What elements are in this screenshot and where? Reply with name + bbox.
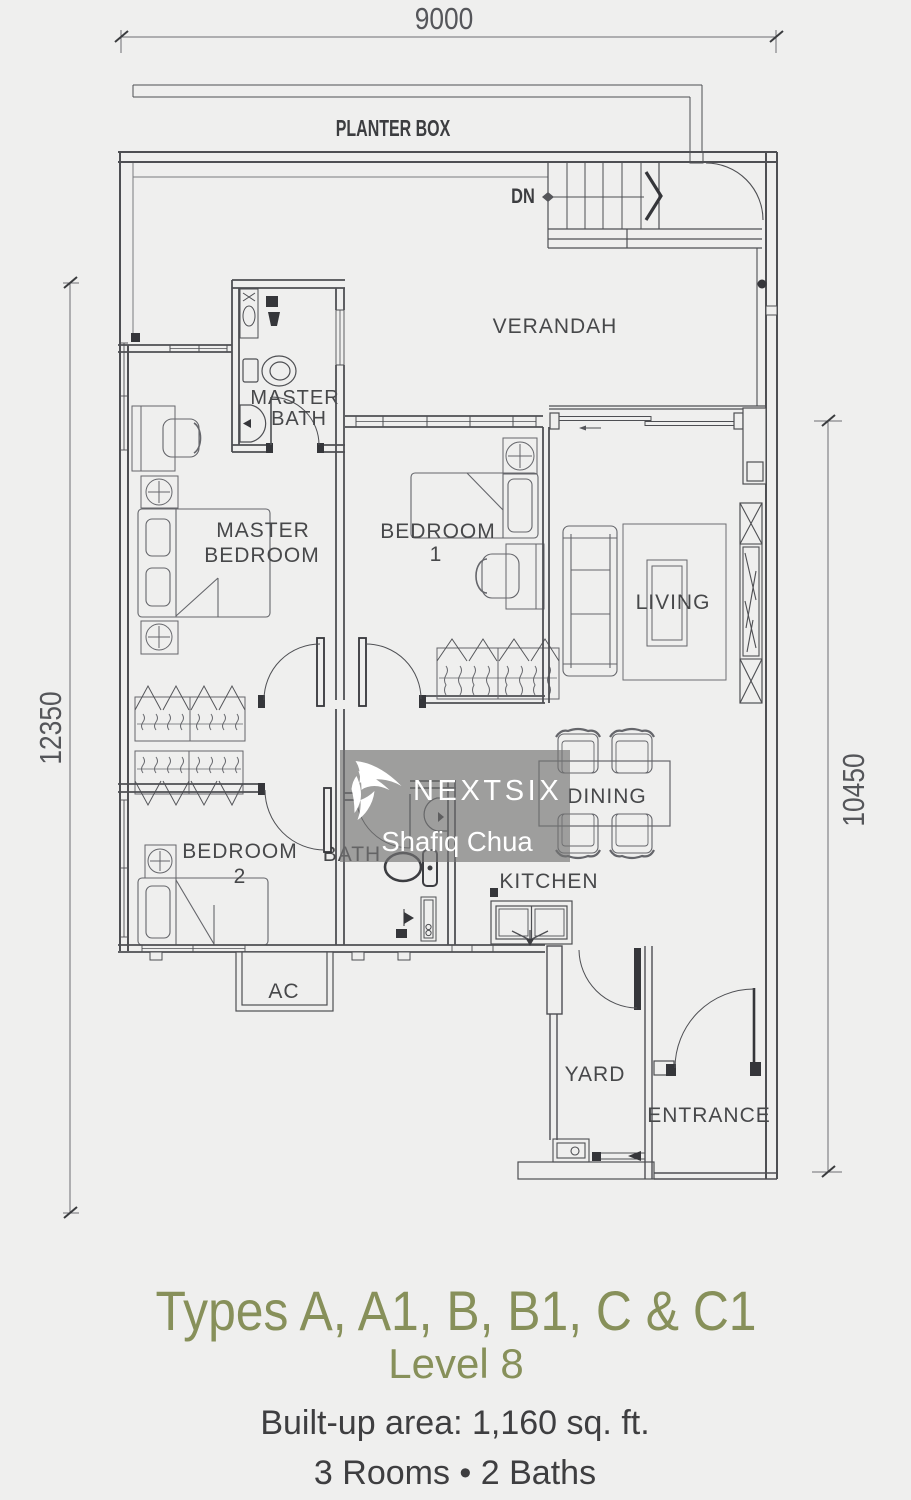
- svg-text:Level 8: Level 8: [388, 1340, 523, 1387]
- svg-text:DINING: DINING: [567, 785, 647, 808]
- svg-text:Shafiq Chua: Shafiq Chua: [381, 826, 533, 857]
- svg-text:BATH: BATH: [271, 408, 327, 430]
- svg-text:DN: DN: [511, 184, 535, 207]
- svg-text:BEDROOM: BEDROOM: [182, 840, 298, 863]
- svg-text:VERANDAH: VERANDAH: [493, 315, 618, 338]
- svg-text:KITCHEN: KITCHEN: [499, 870, 598, 893]
- svg-text:Types A, A1, B, B1, C & C1: Types A, A1, B, B1, C & C1: [155, 1280, 756, 1342]
- svg-text:1: 1: [430, 543, 443, 566]
- svg-text:PLANTER BOX: PLANTER BOX: [336, 116, 451, 142]
- svg-text:3 Rooms • 2 Baths: 3 Rooms • 2 Baths: [314, 1454, 596, 1492]
- svg-text:BEDROOM: BEDROOM: [204, 544, 320, 567]
- svg-text:12350: 12350: [34, 691, 68, 764]
- svg-text:Built-up area: 1,160 sq. ft.: Built-up area: 1,160 sq. ft.: [260, 1404, 649, 1442]
- svg-text:AC: AC: [268, 980, 299, 1003]
- svg-text:9000: 9000: [415, 2, 474, 36]
- svg-text:MASTER: MASTER: [216, 519, 310, 542]
- svg-text:BEDROOM: BEDROOM: [380, 520, 496, 543]
- svg-text:10450: 10450: [837, 753, 871, 826]
- svg-text:LIVING: LIVING: [636, 591, 711, 614]
- svg-text:ENTRANCE: ENTRANCE: [647, 1104, 771, 1127]
- svg-text:YARD: YARD: [565, 1063, 626, 1086]
- svg-text:MASTER: MASTER: [250, 387, 339, 409]
- svg-text:NEXTSIX: NEXTSIX: [413, 775, 562, 807]
- svg-text:2: 2: [234, 865, 247, 888]
